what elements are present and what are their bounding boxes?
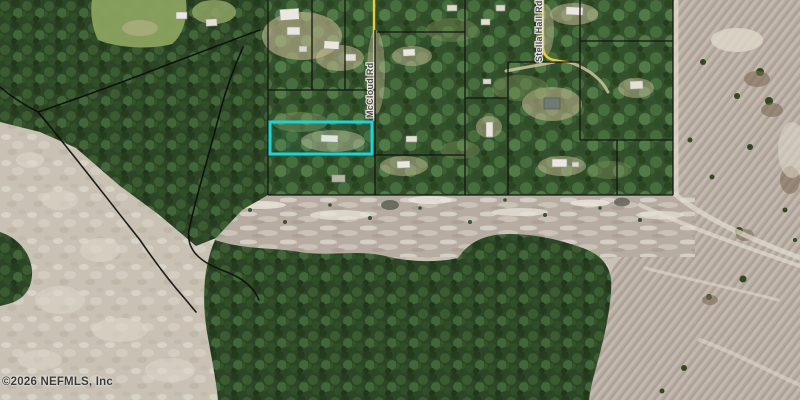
listing-map[interactable]: McCloud Rd Stella Hall Rd ©2026 NEFMLS, … (0, 0, 800, 400)
map-attribution: ©2026 NEFMLS, Inc (2, 376, 113, 388)
subject-parcel-highlight[interactable] (270, 122, 372, 154)
aerial-imagery: McCloud Rd Stella Hall Rd (0, 0, 800, 400)
road-label-stella-hall: Stella Hall Rd (534, 0, 544, 62)
road-label-mccloud: McCloud Rd (365, 63, 375, 119)
cleared-field (215, 195, 695, 257)
